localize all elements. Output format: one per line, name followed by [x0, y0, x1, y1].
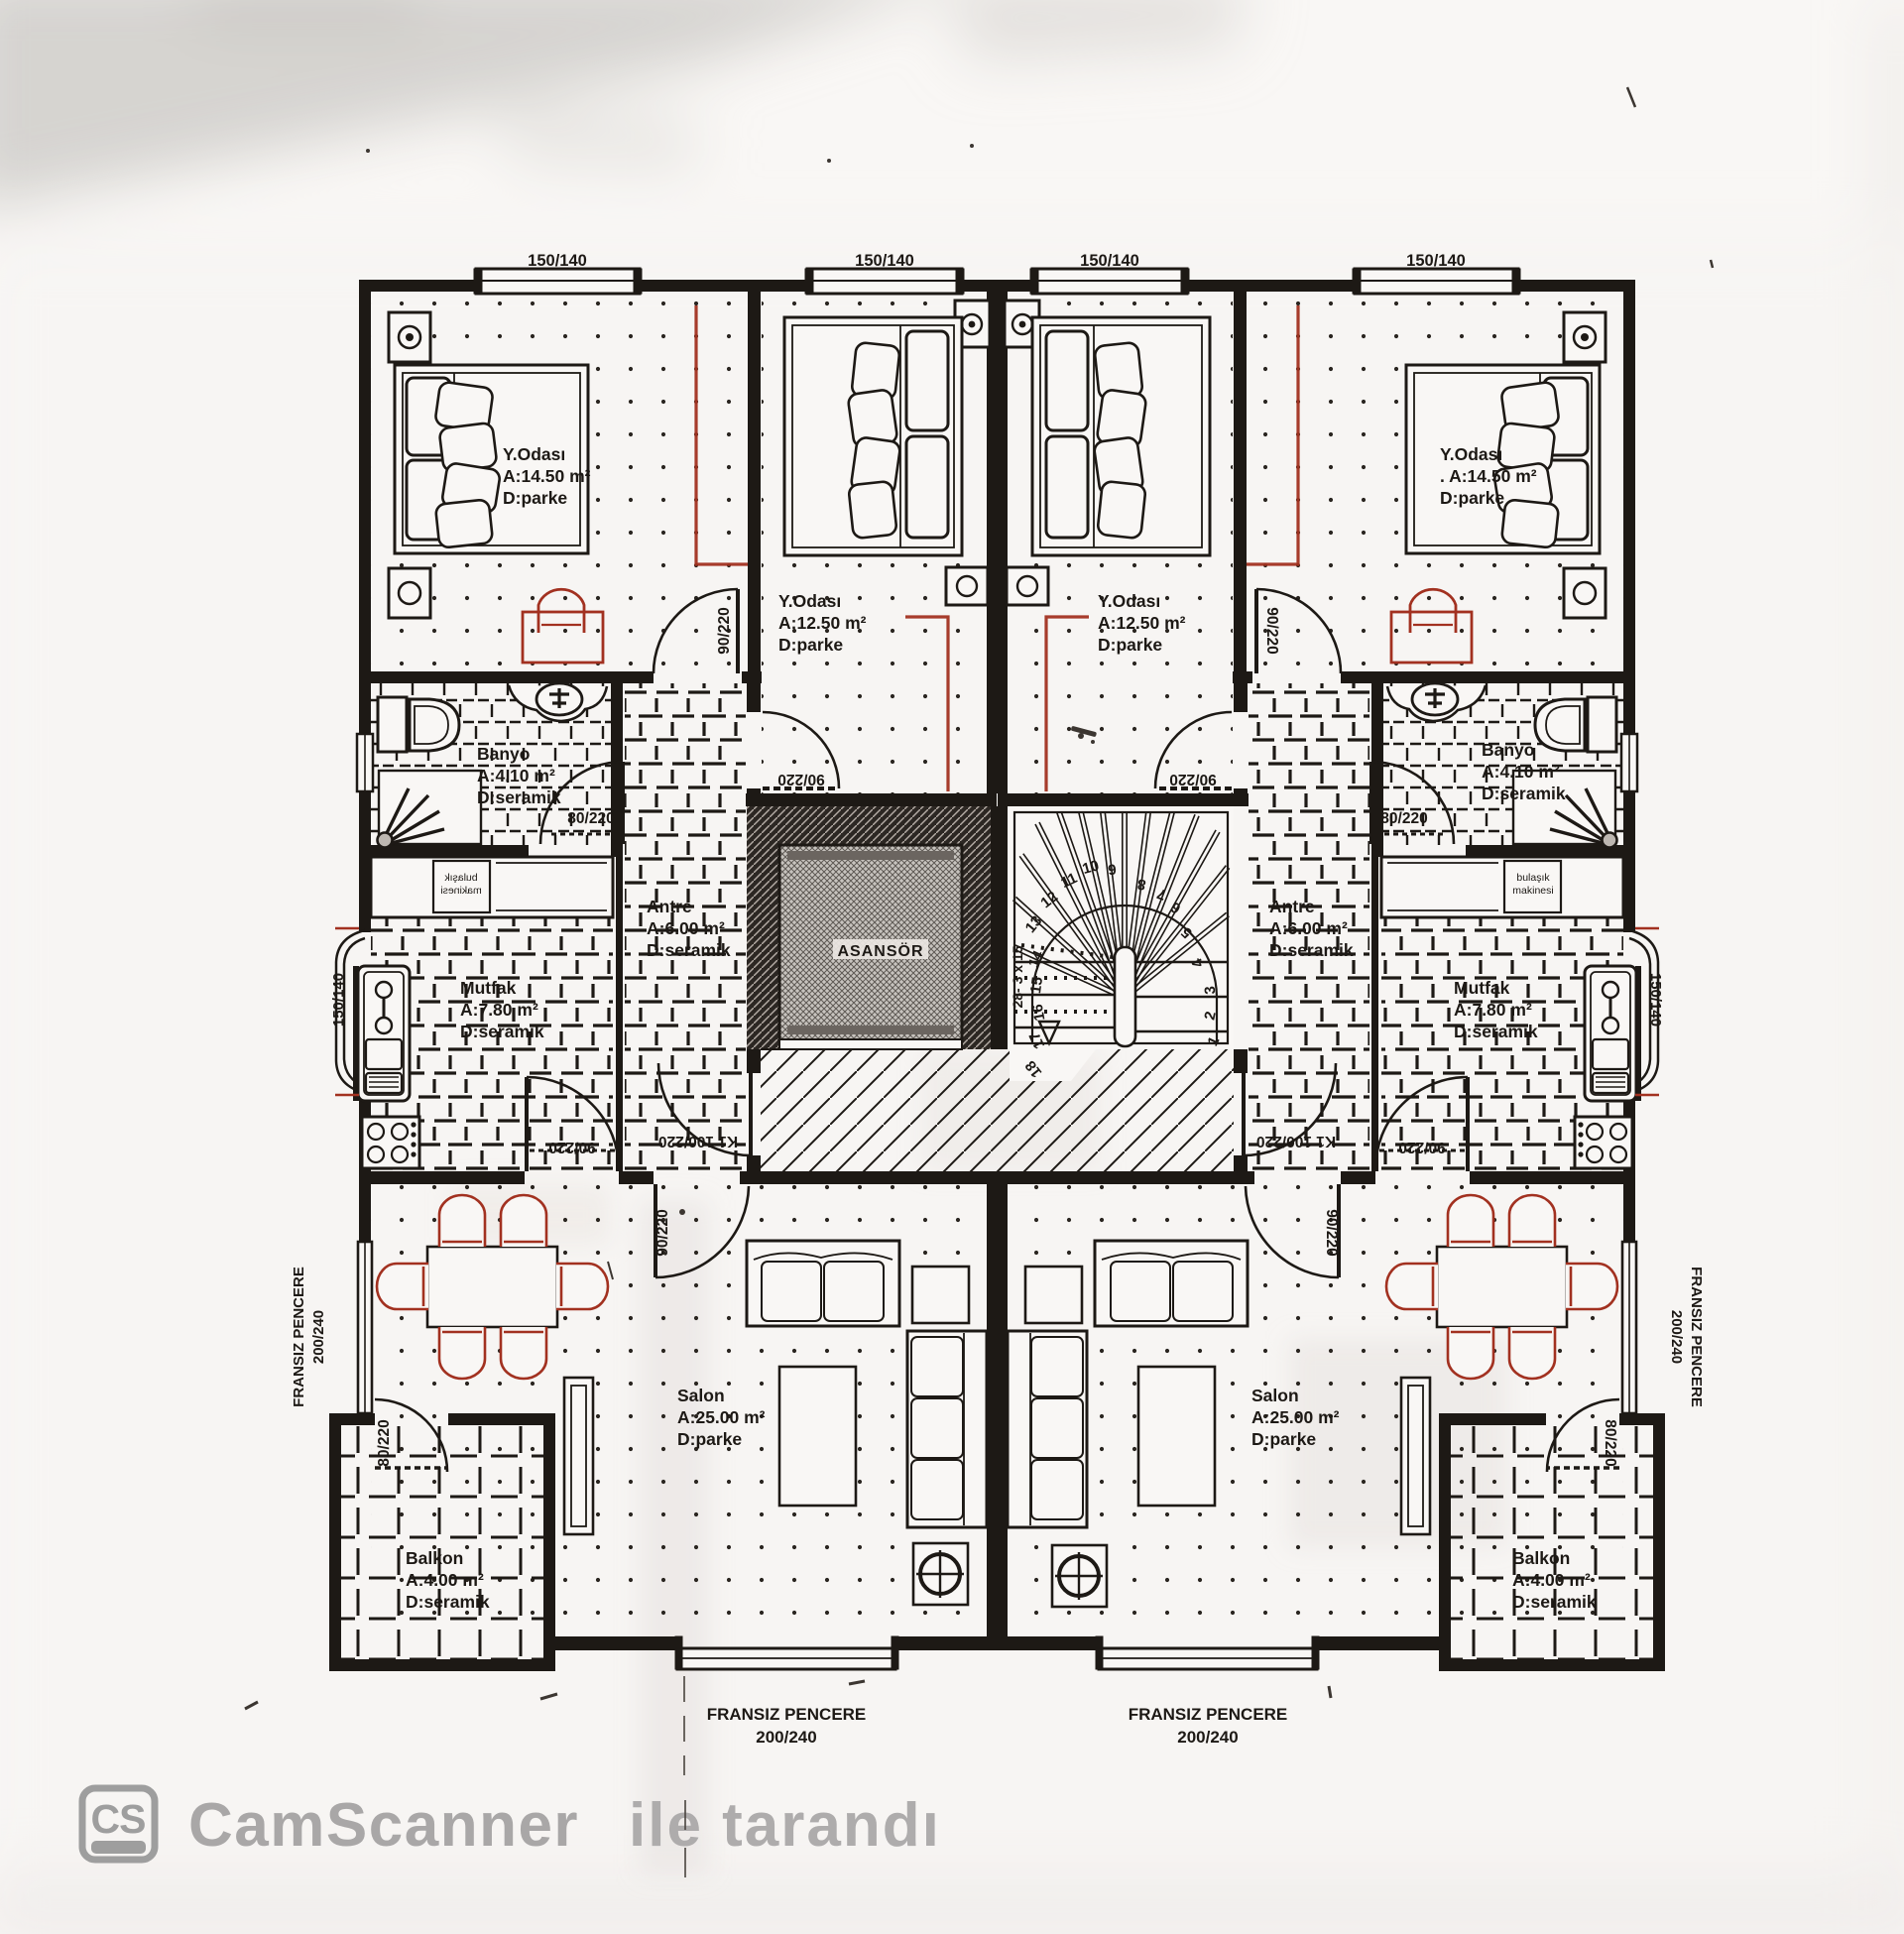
svg-text:90/220: 90/220 [654, 1209, 671, 1256]
svg-text:80/220: 80/220 [376, 1419, 393, 1466]
svg-text:bulaşık: bulaşık [1516, 872, 1550, 884]
svg-text:150/140: 150/140 [1406, 252, 1466, 270]
svg-text:200/240: 200/240 [756, 1728, 816, 1747]
svg-text:ile tarandı: ile tarandı [629, 1791, 941, 1860]
svg-text:150/140: 150/140 [855, 252, 914, 270]
svg-text:150/140: 150/140 [1080, 252, 1139, 270]
svg-text:90/220: 90/220 [716, 607, 733, 654]
svg-text:9: 9 [1107, 862, 1117, 880]
svg-text:90/220: 90/220 [1263, 607, 1280, 654]
svg-text:150/140: 150/140 [528, 252, 587, 270]
svg-text:makinesi: makinesi [440, 885, 481, 897]
svg-text:200/240: 200/240 [310, 1310, 327, 1364]
svg-text:FRANSIZ PENCERE: FRANSIZ PENCERE [707, 1705, 867, 1724]
svg-text:CS: CS [91, 1796, 146, 1842]
svg-text:FRANSIZ PENCERE: FRANSIZ PENCERE [1129, 1705, 1288, 1724]
svg-text:16: 16 [1029, 1003, 1049, 1022]
svg-text:bulaşık: bulaşık [444, 872, 478, 884]
svg-text:200/240: 200/240 [1177, 1728, 1238, 1747]
svg-text:K1 100/220: K1 100/220 [658, 1133, 738, 1149]
svg-text:FRANSIZ PENCERE: FRANSIZ PENCERE [1688, 1267, 1705, 1407]
svg-text:CamScanner: CamScanner [188, 1791, 579, 1860]
svg-text:ASANSÖR: ASANSÖR [837, 941, 923, 960]
svg-text:FRANSIZ PENCERE: FRANSIZ PENCERE [291, 1267, 307, 1407]
svg-text:80/220: 80/220 [1602, 1419, 1618, 1466]
svg-text:80/220: 80/220 [1380, 810, 1427, 827]
svg-text:90/220: 90/220 [548, 1139, 595, 1155]
svg-text:150/140: 150/140 [330, 973, 347, 1027]
svg-text:15: 15 [1027, 976, 1046, 995]
svg-text:90/220: 90/220 [777, 771, 824, 787]
svg-text:150/140: 150/140 [1647, 973, 1664, 1027]
svg-text:200/240: 200/240 [1668, 1310, 1685, 1364]
svg-text:90/220: 90/220 [1169, 771, 1216, 787]
svg-text:K1 100/220: K1 100/220 [1256, 1133, 1336, 1149]
svg-text:28- 3 x 15: 28- 3 x 15 [1010, 945, 1025, 1008]
svg-text:80/220: 80/220 [567, 810, 614, 827]
svg-text:90/220: 90/220 [1398, 1139, 1445, 1155]
svg-text:90/220: 90/220 [1323, 1209, 1340, 1256]
svg-text:3: 3 [1202, 985, 1220, 995]
svg-text:makinesi: makinesi [1512, 885, 1553, 897]
